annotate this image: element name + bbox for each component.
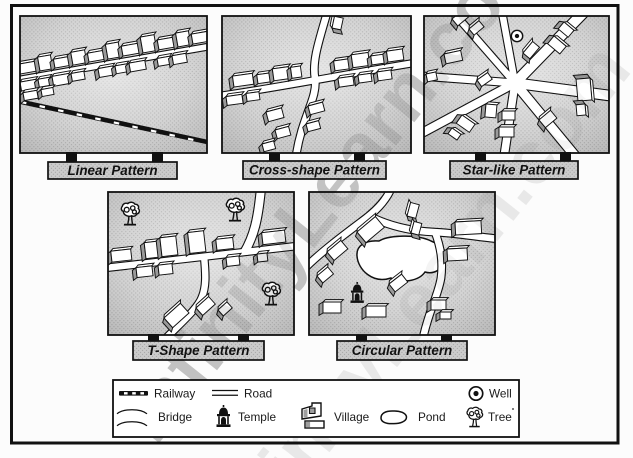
svg-text:Star-like Pattern: Star-like Pattern [463, 163, 566, 178]
svg-text:Well: Well [489, 387, 512, 401]
svg-text:Temple: Temple [238, 410, 276, 424]
svg-text:Railway: Railway [154, 387, 195, 401]
svg-text:Village: Village [334, 410, 370, 424]
svg-text:Circular Pattern: Circular Pattern [352, 343, 452, 358]
svg-text:T-Shape Pattern: T-Shape Pattern [148, 343, 250, 358]
svg-text:Bridge: Bridge [158, 410, 193, 424]
svg-text:Linear Pattern: Linear Pattern [67, 163, 157, 178]
svg-text:Tree: Tree [488, 410, 512, 424]
svg-text:Road: Road [244, 387, 272, 401]
svg-text:Cross-shape Pattern: Cross-shape Pattern [249, 163, 380, 178]
svg-text:Pond: Pond [418, 410, 446, 424]
